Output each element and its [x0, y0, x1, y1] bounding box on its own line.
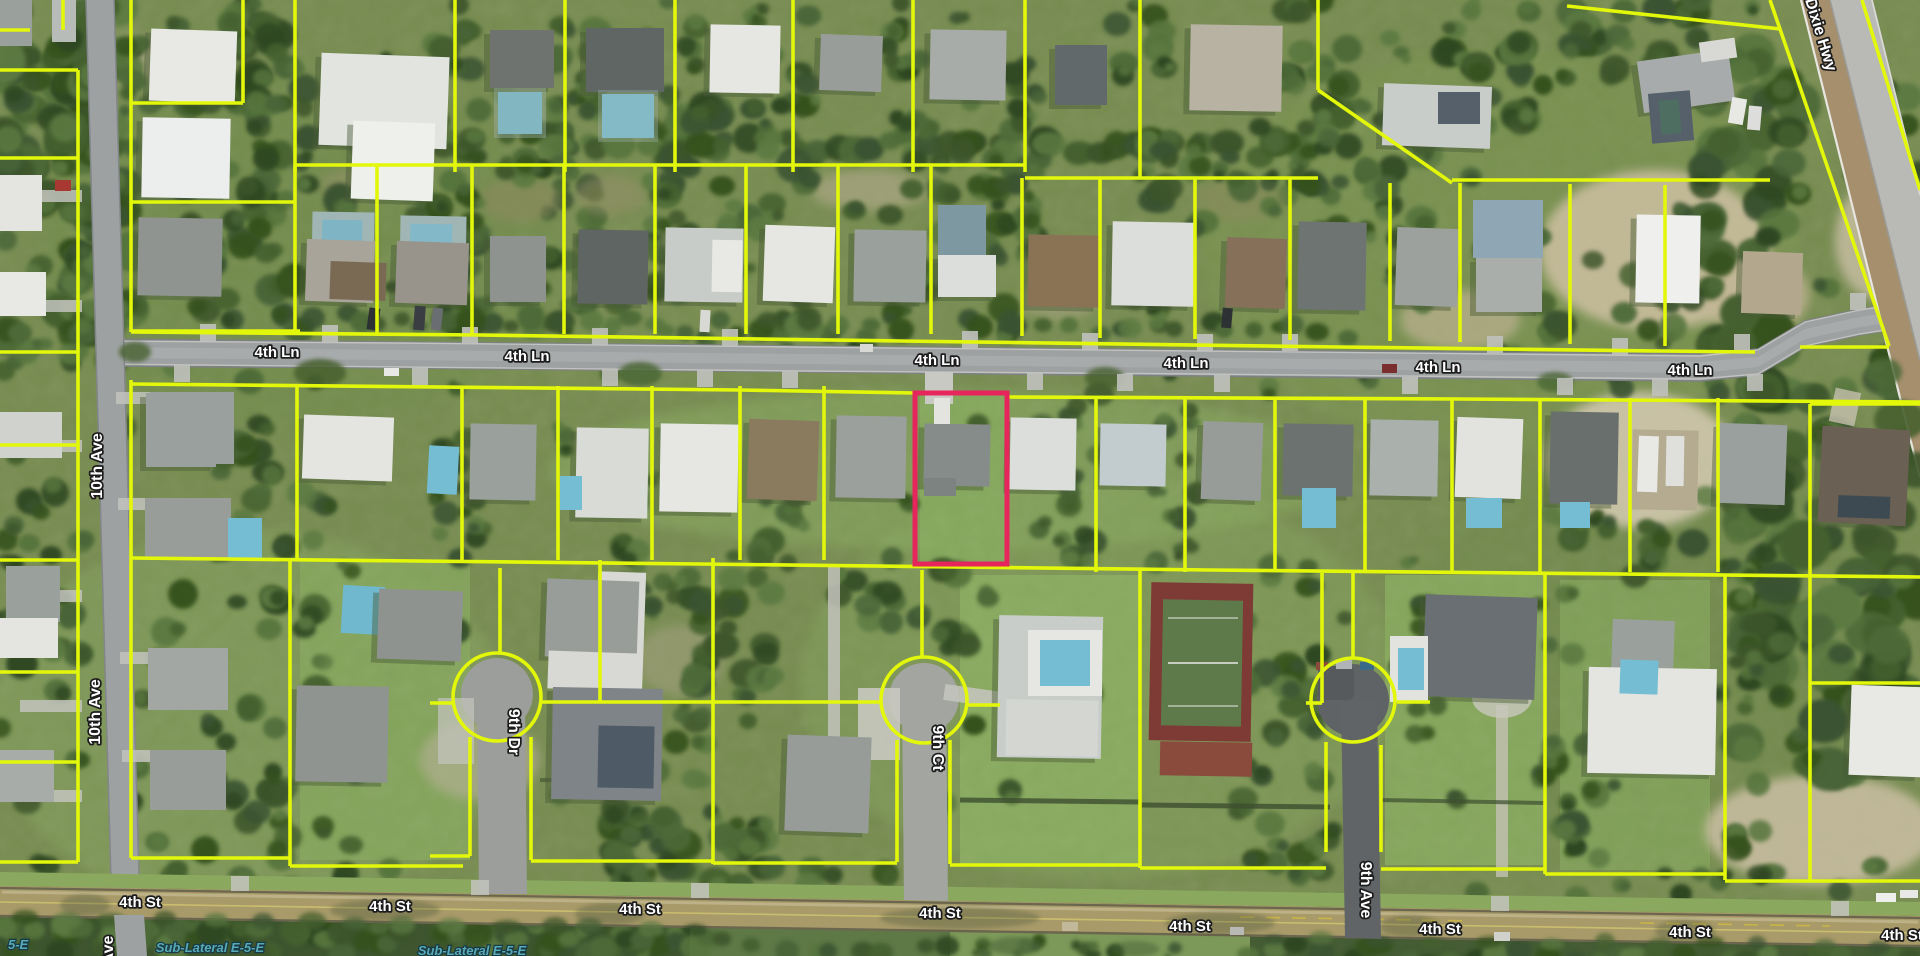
svg-text:10th Ave: 10th Ave [89, 433, 106, 499]
svg-text:5-E: 5-E [8, 937, 29, 952]
svg-text:4th Ln: 4th Ln [1668, 362, 1713, 379]
svg-text:4th Ln: 4th Ln [1416, 359, 1461, 376]
svg-text:4th Ln: 4th Ln [505, 348, 550, 365]
svg-text:9th Ave: 9th Ave [1357, 862, 1374, 919]
svg-text:Sub-Lateral E-5-E: Sub-Lateral E-5-E [156, 940, 265, 955]
svg-text:9th Dr: 9th Dr [505, 709, 522, 755]
svg-text:9th Ct: 9th Ct [929, 725, 946, 771]
svg-text:4th St: 4th St [369, 898, 411, 915]
svg-text:4th Ln: 4th Ln [915, 352, 960, 369]
svg-text:10th Ave: 10th Ave [87, 679, 104, 745]
svg-text:4th St: 4th St [1881, 927, 1920, 944]
svg-text:4th Ln: 4th Ln [255, 344, 300, 361]
svg-text:4th Ln: 4th Ln [1164, 355, 1209, 372]
svg-text:4th St: 4th St [1419, 921, 1461, 938]
svg-text:4th St: 4th St [619, 901, 661, 918]
svg-text:4th St: 4th St [919, 905, 961, 922]
svg-text:Ave: Ave [100, 936, 117, 956]
svg-text:4th St: 4th St [119, 894, 161, 911]
svg-text:Sub-Lateral E-5-E: Sub-Lateral E-5-E [418, 943, 527, 956]
svg-text:4th St: 4th St [1169, 918, 1211, 935]
svg-text:4th St: 4th St [1669, 924, 1711, 941]
